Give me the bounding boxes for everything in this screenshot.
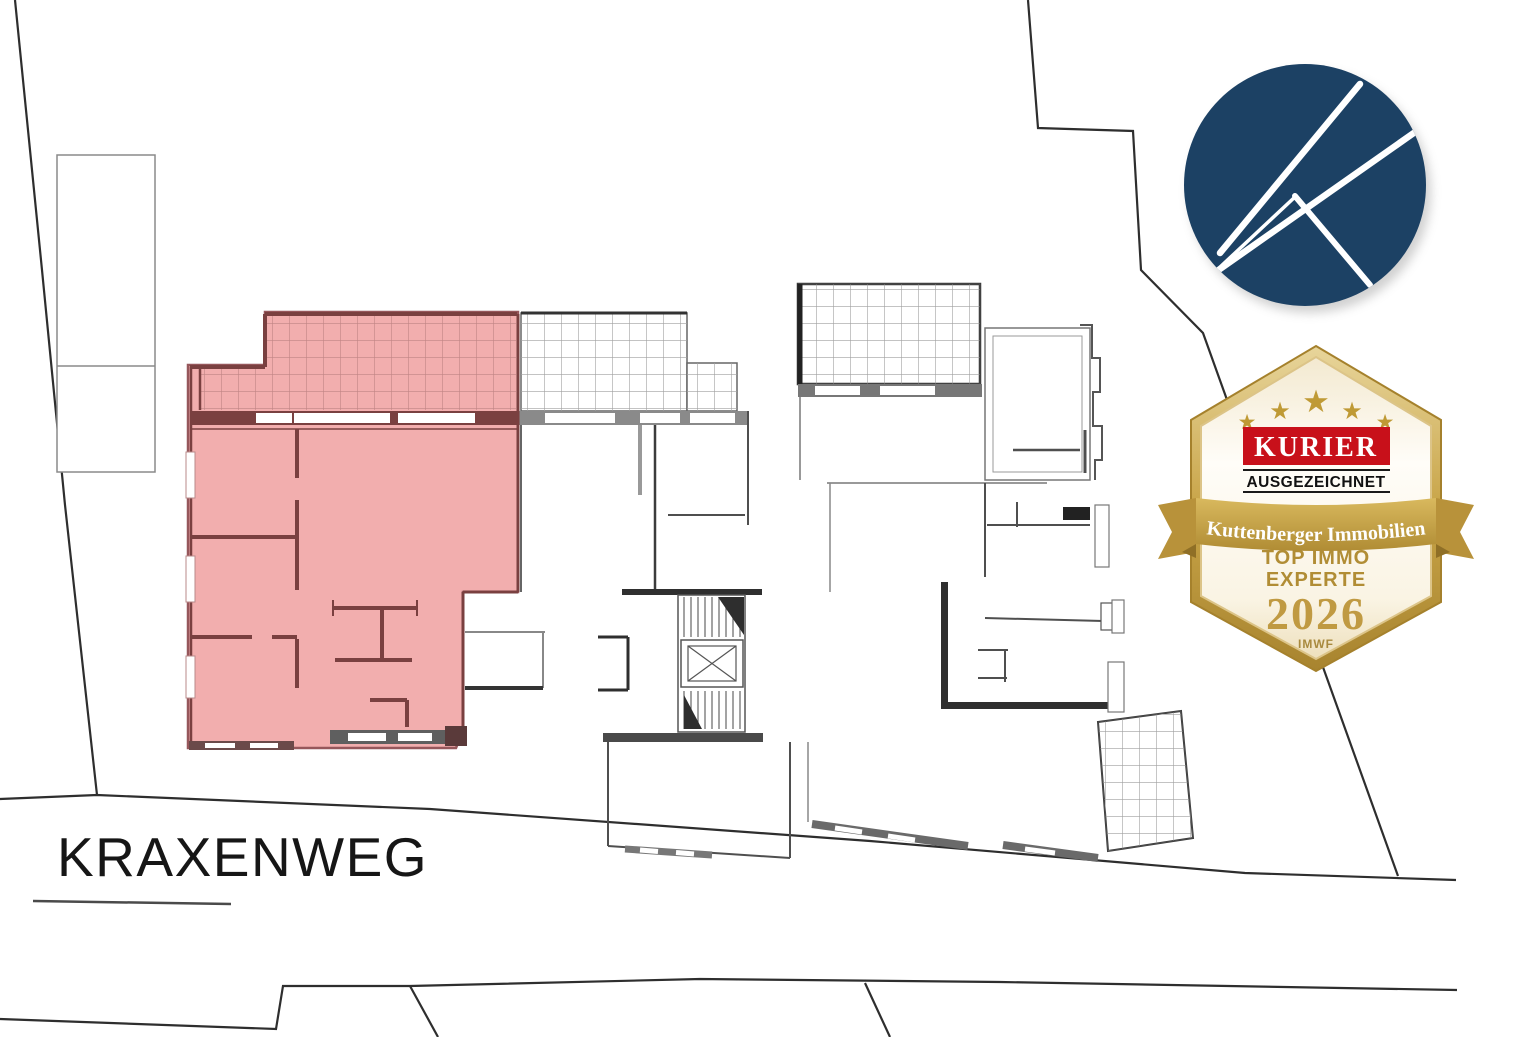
plot-outline-rect: [57, 155, 155, 472]
award-badge: ★ ★ ★ ★ ★ KURIER AUSGEZEICHNET Kuttenber…: [1158, 346, 1474, 671]
terrace-hatch-center: [521, 313, 737, 411]
boundary-diagonal-a: [410, 986, 438, 1037]
star-icon: ★: [1269, 398, 1291, 425]
terrace-hatch-highlighted: [200, 315, 516, 410]
street-label: KRAXENWEG: [57, 826, 428, 888]
listing-site-plan-image: KRAXENWEG ★ ★ ★ ★ ★ KURIER AUSGEZEICHNET: [0, 0, 1536, 1037]
curb-fragment-line: [33, 901, 231, 904]
center-lower-room: [608, 742, 808, 858]
badge-year: 2026: [1266, 588, 1366, 639]
kurier-logo: KURIER: [1243, 427, 1390, 465]
star-icon: ★: [1302, 384, 1330, 419]
company-logo: [1172, 64, 1431, 313]
badge-institute: IMWF: [1298, 637, 1334, 651]
site-plan-svg: KRAXENWEG ★ ★ ★ ★ ★ KURIER AUSGEZEICHNET: [0, 0, 1536, 1037]
kurier-wordmark: KURIER: [1254, 432, 1378, 463]
star-icon: ★: [1341, 398, 1363, 425]
highlighted-unit: [186, 312, 518, 750]
lower-street-line: [0, 979, 1457, 1029]
building-floorplan: [465, 284, 1193, 858]
boundary-diagonal-b: [865, 983, 890, 1037]
terrace-hatch-bottom-right: [1098, 711, 1193, 851]
badge-title-line1: TOP IMMO: [1262, 547, 1370, 569]
right-unit-walls: [798, 284, 1193, 858]
elevator-icon: [681, 640, 743, 687]
award-label: AUSGEZEICHNET: [1246, 474, 1385, 491]
